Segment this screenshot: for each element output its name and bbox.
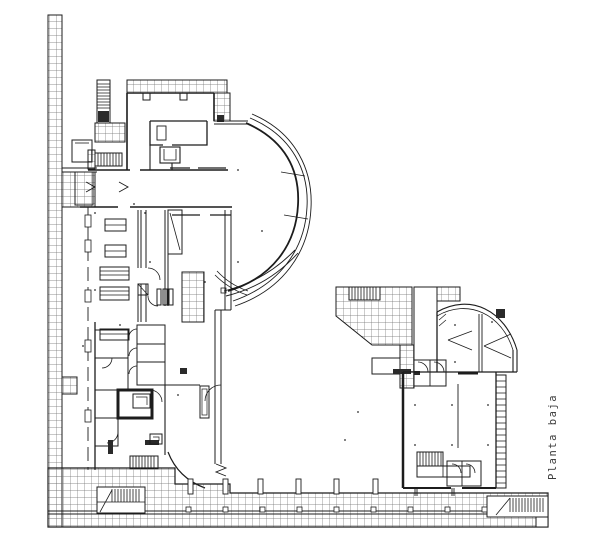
plaza-terrace <box>48 468 548 527</box>
plan-title: Planta baja <box>547 394 559 480</box>
floor-plan-page: Planta baja <box>0 0 600 546</box>
right-building <box>336 287 517 488</box>
floor-plan-drawing: Planta baja <box>0 0 600 546</box>
lower-left-rooms <box>95 210 231 488</box>
top-building <box>72 80 248 470</box>
left-hatched-strip <box>48 15 97 527</box>
central-rooms <box>100 210 204 340</box>
